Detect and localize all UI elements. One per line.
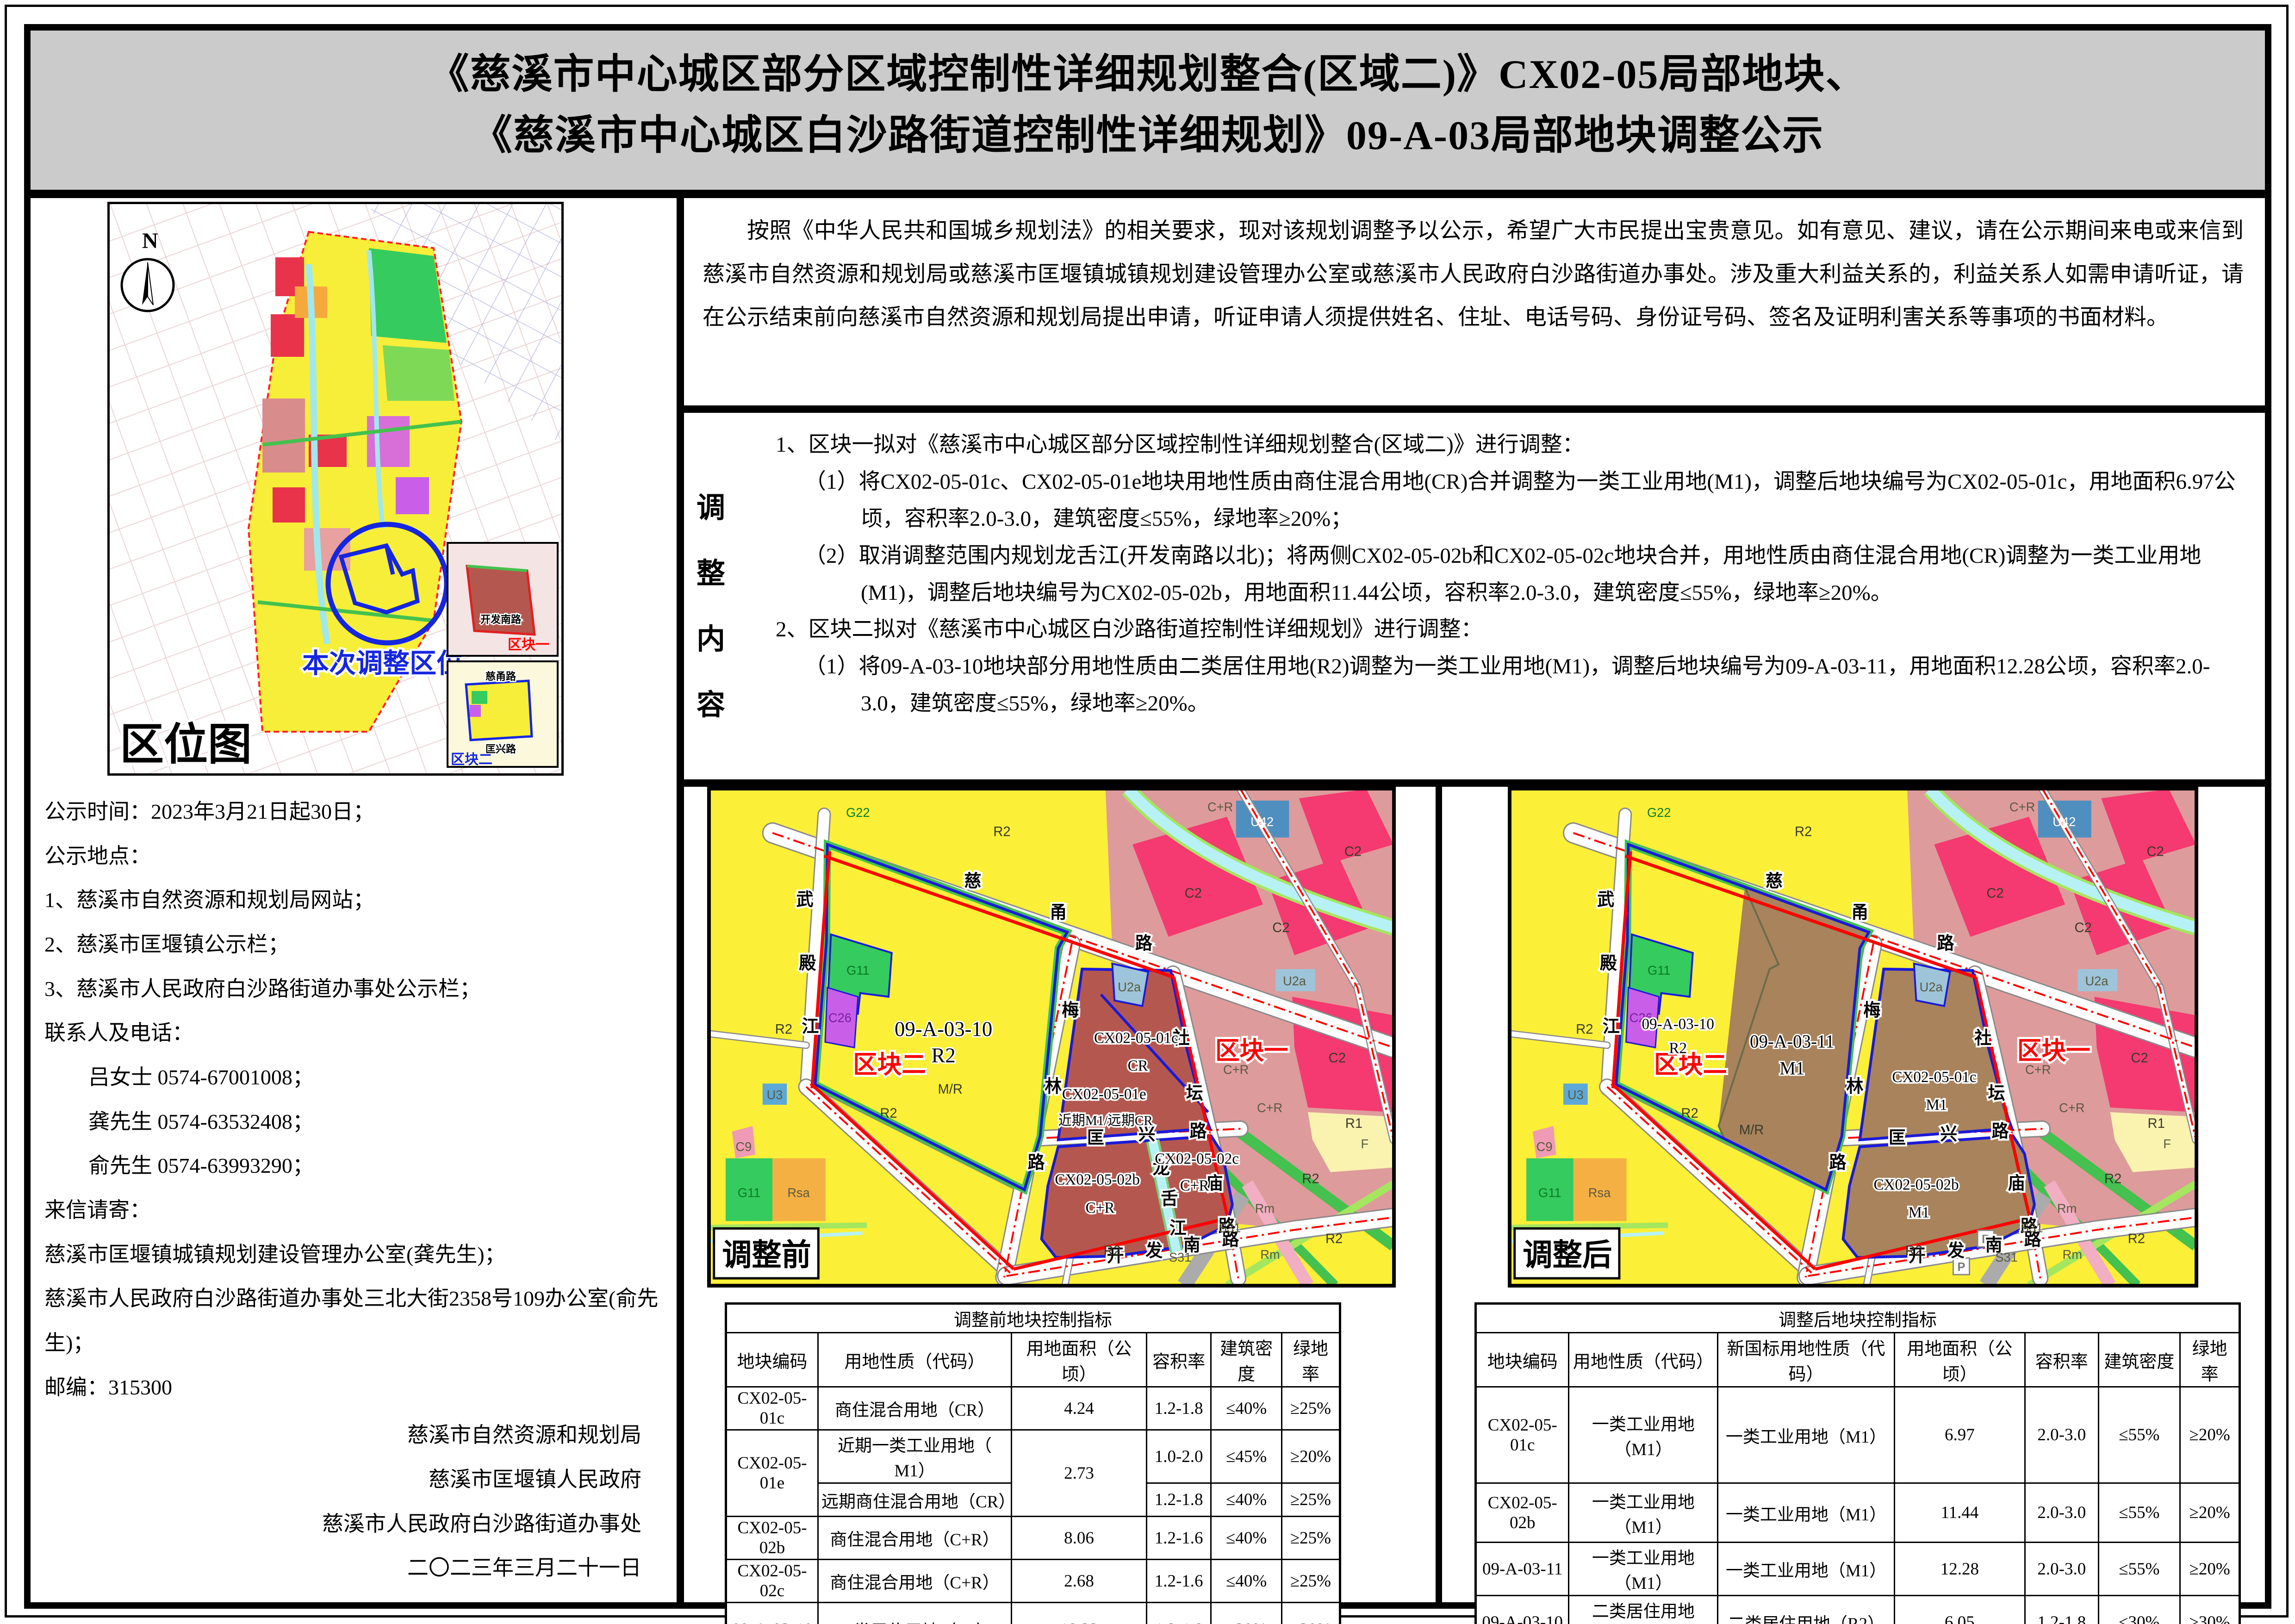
svg-text:M1: M1 xyxy=(1926,1096,1947,1114)
side-label-char: 调 xyxy=(692,484,729,526)
table-row: CX02-05-02c 商住混合用地（C+R） 2.68 1.2-1.6 ≤40… xyxy=(726,1560,1340,1603)
cell: 2.0-3.0 xyxy=(2025,1543,2098,1596)
after-map-corner-label: 调整后 xyxy=(1523,1238,1612,1272)
svg-text:C2: C2 xyxy=(2131,1050,2148,1065)
col-header: 容积率 xyxy=(2025,1333,2098,1387)
cell: 一类工业用地（M1） xyxy=(1569,1483,1718,1543)
svg-text:R2: R2 xyxy=(1104,1243,1121,1258)
before-adjustment-map: 调整前 慈 甬 路 武 殿 江 梅 林 路 匡 兴 路 社 坛 庙 路 开 发 xyxy=(707,787,1396,1288)
cell: ≤40% xyxy=(1211,1483,1282,1517)
svg-text:C2: C2 xyxy=(1329,1050,1346,1065)
adjustment-content: 1、区块一拟对《慈溪市中心城区部分区域控制性详细规划整合(区域二)》进行调整： … xyxy=(753,427,2248,722)
info-line: 3、慈溪市人民政府白沙路街道办事处公示栏； xyxy=(44,967,667,1011)
svg-text:慈: 慈 xyxy=(1766,871,1783,891)
svg-text:C9: C9 xyxy=(1536,1139,1553,1154)
after-adjustment-map: P P 调整后 慈 甬 路 武 殿 江 梅 林 路 匡 兴 xyxy=(1508,787,2198,1288)
svg-text:F: F xyxy=(1361,1137,1368,1151)
svg-text:C2: C2 xyxy=(1344,844,1362,859)
svg-text:路: 路 xyxy=(1829,1153,1847,1172)
svg-text:F: F xyxy=(2163,1137,2171,1151)
side-label-char: 整 xyxy=(692,550,729,591)
cell: CX02-05-02b xyxy=(726,1517,818,1560)
svg-text:舌: 舌 xyxy=(1161,1189,1178,1209)
svg-text:CX02-05-02b: CX02-05-02b xyxy=(1055,1171,1140,1188)
svg-text:U3: U3 xyxy=(1567,1088,1584,1102)
svg-text:U2a: U2a xyxy=(1283,974,1306,988)
location-map-svg: 本次调整区位 N 开发南路 区块一 xyxy=(110,204,561,773)
svg-text:江: 江 xyxy=(1169,1219,1187,1238)
svg-text:G11: G11 xyxy=(738,1185,760,1200)
table-row: CX02-05-01c 一类工业用地（M1） 一类工业用地（M1） 6.97 2… xyxy=(1476,1387,2240,1483)
svg-text:Rm: Rm xyxy=(2057,1201,2077,1215)
svg-text:R2: R2 xyxy=(1681,1106,1698,1121)
svg-text:G11: G11 xyxy=(846,963,869,977)
adjustment-item1-head: 1、区块一拟对《慈溪市中心城区部分区域控制性详细规划整合(区域二)》进行调整： xyxy=(753,427,2248,464)
svg-text:R1: R1 xyxy=(2148,1116,2165,1131)
notice-paragraph: 按照《中华人民共和国城乡规划法》的相关要求，现对该规划调整予以公示，希望广大市民… xyxy=(703,209,2244,339)
contact-line: 俞先生 0574-63993290； xyxy=(44,1144,667,1188)
signature-date: 二〇二三年三月二十一日 xyxy=(44,1546,641,1590)
col-header: 用地性质（代码） xyxy=(1569,1333,1718,1387)
divider-under-notice xyxy=(684,405,2265,413)
cell: 09-A-03-10 xyxy=(726,1603,818,1624)
svg-text:路: 路 xyxy=(1135,934,1153,954)
svg-text:Rsa: Rsa xyxy=(1588,1185,1611,1200)
cell: 1.2-1.6 xyxy=(1146,1517,1211,1560)
location-map: 本次调整区位 N 开发南路 区块一 xyxy=(107,202,564,776)
divider-before-after xyxy=(1436,787,1442,1602)
svg-text:G11: G11 xyxy=(1648,963,1671,977)
before-map-svg: 调整前 慈 甬 路 武 殿 江 梅 林 路 匡 兴 路 社 坛 庙 路 开 发 xyxy=(709,789,1393,1285)
svg-text:开发南路: 开发南路 xyxy=(480,614,522,625)
notice-info: 公示时间：2023年3月21日起30日； 公示地点： 1、慈溪市自然资源和规划局… xyxy=(44,790,667,1590)
title-line-1: 《慈溪市中心城区部分区域控制性详细规划整合(区域二)》CX02-05局部地块、 xyxy=(31,44,2265,106)
svg-text:CX02-05-02b: CX02-05-02b xyxy=(1873,1176,1959,1193)
svg-text:CX02-05-02c: CX02-05-02c xyxy=(1155,1150,1239,1167)
cell: 1.2-1.8 xyxy=(2025,1596,2098,1624)
svg-text:U2a: U2a xyxy=(1920,979,1943,994)
svg-text:R1: R1 xyxy=(1345,1116,1362,1131)
col-header: 地块编码 xyxy=(1476,1333,1569,1387)
svg-text:U2a: U2a xyxy=(1118,979,1141,994)
svg-text:S31: S31 xyxy=(2021,1220,2043,1235)
cell: 2.0-3.0 xyxy=(2025,1483,2098,1543)
svg-text:路: 路 xyxy=(1991,1122,2009,1141)
cell: 12.28 xyxy=(1894,1543,2025,1596)
svg-text:P: P xyxy=(1958,1261,1965,1274)
svg-text:梅: 梅 xyxy=(1062,1001,1079,1020)
after-indicator-table: 调整后地块控制指标 地块编码 用地性质（代码） 新国标用地性质（代码） 用地面积… xyxy=(1474,1302,2241,1624)
svg-text:武: 武 xyxy=(1597,890,1614,909)
svg-text:C2: C2 xyxy=(1986,885,2003,901)
svg-text:M/R: M/R xyxy=(938,1082,962,1097)
svg-text:C2: C2 xyxy=(1272,920,1289,935)
info-line: 1、慈溪市自然资源和规划局网站； xyxy=(44,878,667,922)
cell: 二类居住用地（R2） xyxy=(818,1603,1012,1624)
info-line: 慈溪市人民政府白沙路街道办事处三北大街2358号109办公室(俞先生)； xyxy=(44,1276,667,1365)
title-band: 《慈溪市中心城区部分区域控制性详细规划整合(区域二)》CX02-05局部地块、 … xyxy=(31,31,2265,198)
svg-text:R2: R2 xyxy=(2128,1231,2145,1246)
svg-text:路: 路 xyxy=(1190,1121,1207,1141)
svg-text:09-A-03-11: 09-A-03-11 xyxy=(1750,1031,1835,1052)
divider-vertical-main xyxy=(677,198,684,1602)
table-row: 09-A-03-10 二类居住用地（R2） 二类居住用地（R2） 6.05 1.… xyxy=(1476,1596,2240,1624)
col-header: 新国标用地性质（代码） xyxy=(1718,1333,1894,1387)
inset-block1: 开发南路 区块一 xyxy=(448,543,558,656)
cell: 近期一类工业用地（ M1） xyxy=(818,1430,1012,1483)
svg-text:R2: R2 xyxy=(775,1021,792,1037)
before-indicator-table: 调整前地块控制指标 地块编码 用地性质（代码） 用地面积（公顷） 容积率 建筑密… xyxy=(725,1302,1341,1624)
cell: ≤40% xyxy=(1211,1517,1282,1560)
cell: ≥30% xyxy=(1281,1603,1340,1624)
svg-text:CR: CR xyxy=(1128,1057,1149,1074)
cell: ≥20% xyxy=(2180,1387,2240,1483)
info-line: 联系人及电话： xyxy=(44,1011,667,1055)
cell: ≥30% xyxy=(2180,1596,2240,1624)
signature-line: 慈溪市自然资源和规划局 xyxy=(44,1413,641,1457)
cell: ≤55% xyxy=(2098,1483,2180,1543)
info-line: 来信请寄： xyxy=(44,1188,667,1232)
cell: 一类工业用地（M1） xyxy=(1718,1387,1894,1483)
table-title: 调整后地块控制指标 xyxy=(1476,1304,2240,1333)
info-line: 公示地点： xyxy=(44,834,667,878)
signature-line: 慈溪市人民政府白沙路街道办事处 xyxy=(44,1502,641,1546)
adjustment-item1-1: （1）将CX02-05-01c、CX02-05-01e地块用地性质由商住混合用地… xyxy=(753,464,2248,538)
table-row: 09-A-03-11 一类工业用地（M1） 一类工业用地（M1） 12.28 2… xyxy=(1476,1543,2240,1596)
svg-text:N: N xyxy=(142,229,158,253)
svg-text:U42: U42 xyxy=(2052,814,2076,828)
col-header: 建筑密度 xyxy=(2098,1333,2180,1387)
svg-text:C2: C2 xyxy=(2147,844,2164,859)
svg-text:坛: 坛 xyxy=(1988,1084,2005,1103)
cell: ≤40% xyxy=(1211,1560,1282,1603)
svg-text:武: 武 xyxy=(796,890,814,910)
svg-text:S31: S31 xyxy=(1169,1250,1191,1264)
col-header: 建筑密度 xyxy=(1211,1333,1282,1387)
table-row: CX02-05-02b 一类工业用地（M1） 一类工业用地（M1） 11.44 … xyxy=(1476,1483,2240,1543)
col-header: 用地面积（公顷） xyxy=(1012,1333,1147,1387)
adjustment-item2-head: 2、区块二拟对《慈溪市中心城区白沙路街道控制性详细规划》进行调整： xyxy=(753,611,2248,648)
cell: ≥25% xyxy=(1281,1387,1340,1430)
cell: ≥20% xyxy=(2180,1483,2240,1543)
svg-text:09-A-03-10: 09-A-03-10 xyxy=(1642,1015,1714,1033)
cell: 1.2-1.6 xyxy=(1146,1560,1211,1603)
adjustment-item1-2: （2）取消调整范围内规划龙舌江(开发南路以北)；将两侧CX02-05-02b和C… xyxy=(753,538,2248,612)
table-title: 调整前地块控制指标 xyxy=(726,1304,1340,1333)
svg-text:甬: 甬 xyxy=(1050,903,1067,923)
table-row: CX02-05-01e 近期一类工业用地（ M1） 2.73 1.0-2.0 ≤… xyxy=(726,1430,1340,1483)
svg-text:C9: C9 xyxy=(736,1139,752,1153)
col-header: 绿地率 xyxy=(2180,1333,2240,1387)
svg-text:殿: 殿 xyxy=(1600,954,1617,973)
content-frame: 《慈溪市中心城区部分区域控制性详细规划整合(区域二)》CX02-05局部地块、 … xyxy=(24,24,2271,1609)
divider-under-adjustment xyxy=(684,779,2265,787)
svg-text:Rm: Rm xyxy=(1255,1201,1275,1215)
table-row: CX02-05-02b 商住混合用地（C+R） 8.06 1.2-1.6 ≤40… xyxy=(726,1517,1340,1560)
svg-text:C+R: C+R xyxy=(1223,1062,1249,1076)
svg-text:CX02-05-01e: CX02-05-01e xyxy=(1062,1086,1146,1103)
svg-text:G11: G11 xyxy=(1538,1185,1561,1200)
svg-text:R2: R2 xyxy=(1669,1039,1687,1057)
cell: 二类居住用地（R2） xyxy=(1718,1596,1894,1624)
svg-text:C+R: C+R xyxy=(2059,1101,2084,1115)
cell: CX02-05-02b xyxy=(1476,1483,1569,1543)
cell: ≥25% xyxy=(1281,1517,1340,1560)
cell: 远期商住混合用地（CR） xyxy=(818,1483,1012,1517)
cell: ≥25% xyxy=(1281,1560,1340,1603)
col-header: 用地性质（代码） xyxy=(818,1333,1012,1387)
signature-line: 慈溪市匡堰镇人民政府 xyxy=(44,1457,641,1502)
inset-block2: 慈甬路 匡兴路 区块二 xyxy=(448,661,558,767)
cell: ≤55% xyxy=(2098,1387,2180,1483)
cell: 一类工业用地（M1） xyxy=(1718,1543,1894,1596)
cell: 2.73 xyxy=(1012,1430,1147,1517)
cell: CX02-05-01c xyxy=(1476,1387,1569,1483)
svg-text:C+R: C+R xyxy=(1180,1177,1209,1194)
cell: 18.33 xyxy=(1012,1603,1147,1624)
highlight-label: 本次调整区位 xyxy=(302,648,463,678)
col-header: 地块编码 xyxy=(726,1333,818,1387)
side-label-char: 内 xyxy=(692,616,729,657)
cell: 2.68 xyxy=(1012,1560,1147,1603)
svg-text:林: 林 xyxy=(1045,1077,1062,1097)
cell: 商住混合用地（CR） xyxy=(818,1387,1012,1430)
svg-text:江: 江 xyxy=(1603,1017,1620,1036)
inset2-label: 区块二 xyxy=(451,752,492,767)
cell: 4.24 xyxy=(1012,1387,1147,1430)
cell: 2.0-3.0 xyxy=(2025,1387,2098,1483)
notice-paragraph-text: 按照《中华人民共和国城乡规划法》的相关要求，现对该规划调整予以公示，希望广大市民… xyxy=(703,209,2244,339)
cell: 1.2-1.8 xyxy=(1146,1603,1211,1624)
cell: ≤45% xyxy=(1211,1430,1282,1483)
title-line-2: 《慈溪市中心城区白沙路街道控制性详细规划》09-A-03局部地块调整公示 xyxy=(31,106,2265,167)
table-row: 09-A-03-10 二类居住用地（R2） 18.33 1.2-1.8 ≤30%… xyxy=(726,1603,1340,1624)
adjustment-item2-1: （1）将09-A-03-10地块部分用地性质由二类居住用地(R2)调整为一类工业… xyxy=(753,648,2248,722)
table-row: CX02-05-01c 商住混合用地（CR） 4.24 1.2-1.8 ≤40%… xyxy=(726,1387,1340,1430)
svg-text:C+R: C+R xyxy=(1257,1101,1282,1115)
svg-text:S31: S31 xyxy=(1219,1220,1241,1235)
svg-text:Rsa: Rsa xyxy=(787,1185,810,1200)
svg-text:U2a: U2a xyxy=(2085,974,2108,988)
zone2-label: 区块二 xyxy=(853,1051,926,1079)
cell: 商住混合用地（C+R） xyxy=(818,1517,1012,1560)
svg-text:R2: R2 xyxy=(2104,1171,2121,1186)
cell: ≥20% xyxy=(2180,1543,2240,1596)
svg-text:S31: S31 xyxy=(1995,1250,2018,1264)
zone1-label: 区块一 xyxy=(2017,1037,2090,1065)
svg-text:坛: 坛 xyxy=(1186,1084,1203,1104)
cell: 1.0-2.0 xyxy=(1146,1430,1211,1483)
col-header: 容积率 xyxy=(1146,1333,1211,1387)
public-notice-poster: 《慈溪市中心城区部分区域控制性详细规划整合(区域二)》CX02-05局部地块、 … xyxy=(0,0,2295,1624)
svg-text:殿: 殿 xyxy=(799,954,817,974)
svg-text:慈甬路: 慈甬路 xyxy=(485,671,516,682)
svg-text:U3: U3 xyxy=(767,1088,783,1102)
svg-text:M/R: M/R xyxy=(1739,1122,1764,1138)
cell: ≥20% xyxy=(1281,1430,1340,1483)
cell: 1.2-1.8 xyxy=(1146,1483,1211,1517)
info-line: 公示时间：2023年3月21日起30日； xyxy=(44,790,667,834)
info-line: 2、慈溪市匡堰镇公示栏； xyxy=(44,922,667,967)
svg-text:R2: R2 xyxy=(1302,1171,1319,1186)
svg-text:C+R: C+R xyxy=(1207,800,1233,814)
svg-text:匡: 匡 xyxy=(1889,1128,1906,1147)
svg-text:庙: 庙 xyxy=(2008,1174,2025,1193)
svg-text:C2: C2 xyxy=(2075,920,2092,935)
side-label-char: 容 xyxy=(692,681,729,723)
svg-text:甬: 甬 xyxy=(1851,903,1868,922)
zone2-label: 区块二 xyxy=(1654,1051,1727,1079)
svg-text:G22: G22 xyxy=(1647,805,1671,820)
cell: 11.44 xyxy=(1894,1483,2025,1543)
svg-text:C+R: C+R xyxy=(2009,800,2035,814)
cell: 一类工业用地（M1） xyxy=(1569,1543,1718,1596)
cell: ≤40% xyxy=(1211,1387,1282,1430)
svg-text:R2: R2 xyxy=(880,1106,897,1121)
svg-text:U42: U42 xyxy=(1250,814,1274,828)
svg-text:R2: R2 xyxy=(1795,824,1812,839)
svg-text:M1: M1 xyxy=(1779,1058,1804,1078)
svg-text:路: 路 xyxy=(1027,1153,1045,1173)
svg-text:梅: 梅 xyxy=(1863,1001,1880,1020)
cell: 8.06 xyxy=(1012,1517,1147,1560)
cell: 09-A-03-10 xyxy=(1476,1596,1569,1624)
svg-text:近期M1/远期CR: 近期M1/远期CR xyxy=(1058,1113,1153,1128)
svg-text:C26: C26 xyxy=(828,1010,852,1025)
svg-text:江: 江 xyxy=(802,1017,819,1037)
location-map-title: 区位图 xyxy=(120,720,252,769)
svg-text:R2: R2 xyxy=(932,1044,956,1067)
cell: 商住混合用地（C+R） xyxy=(818,1560,1012,1603)
cell: 二类居住用地（R2） xyxy=(1569,1596,1718,1624)
contact-line: 龚先生 0574-63532408； xyxy=(44,1100,667,1144)
contact-line: 吕女士 0574-67001008； xyxy=(44,1055,667,1100)
col-header: 用地面积（公顷） xyxy=(1894,1333,2025,1387)
svg-text:C+R: C+R xyxy=(1086,1199,1115,1216)
svg-text:C+R: C+R xyxy=(2025,1062,2051,1076)
before-map-corner-label: 调整前 xyxy=(722,1238,811,1272)
zone1-label: 区块一 xyxy=(1215,1037,1288,1065)
svg-text:R2: R2 xyxy=(993,824,1010,839)
adjustment-side-label: 调 整 内 容 xyxy=(692,484,729,747)
svg-text:M1: M1 xyxy=(1908,1204,1929,1221)
info-line: 邮编：315300 xyxy=(44,1365,667,1410)
svg-text:慈: 慈 xyxy=(964,871,981,891)
svg-text:R2: R2 xyxy=(1325,1231,1343,1246)
cell: 一类工业用地（M1） xyxy=(1718,1483,1894,1543)
cell: 09-A-03-11 xyxy=(1476,1543,1569,1596)
svg-text:路: 路 xyxy=(1937,934,1954,953)
svg-text:R2: R2 xyxy=(1576,1021,1593,1037)
signature-block: 慈溪市自然资源和规划局 慈溪市匡堰镇人民政府 慈溪市人民政府白沙路街道办事处 二… xyxy=(44,1413,667,1590)
cell: 1.2-1.8 xyxy=(1146,1387,1211,1430)
cell: 6.97 xyxy=(1894,1387,2025,1483)
svg-text:09-A-03-10: 09-A-03-10 xyxy=(895,1017,992,1041)
inset1-label: 区块一 xyxy=(508,637,549,653)
cell: 6.05 xyxy=(1894,1596,2025,1624)
cell: ≤30% xyxy=(1211,1603,1282,1624)
after-map-svg: P P 调整后 慈 甬 路 武 殿 江 梅 林 路 匡 兴 xyxy=(1510,789,2196,1285)
svg-text:Rm: Rm xyxy=(1260,1247,1280,1262)
svg-text:兴: 兴 xyxy=(1940,1125,1957,1144)
svg-text:发: 发 xyxy=(1145,1241,1163,1261)
cell: ≤55% xyxy=(2098,1543,2180,1596)
svg-text:C2: C2 xyxy=(1185,885,1202,901)
svg-text:R2: R2 xyxy=(1905,1243,1922,1258)
svg-text:CX02-05-01c: CX02-05-01c xyxy=(1094,1029,1178,1046)
svg-text:发: 发 xyxy=(1947,1241,1965,1261)
svg-text:Rm: Rm xyxy=(2063,1247,2082,1262)
info-line: 慈溪市匡堰镇城镇规划建设管理办公室(龚先生)； xyxy=(44,1232,667,1277)
cell: CX02-05-01c xyxy=(726,1387,818,1430)
cell: ≤30% xyxy=(2098,1596,2180,1624)
col-header: 绿地率 xyxy=(1281,1333,1340,1387)
cell: CX02-05-02c xyxy=(726,1560,818,1603)
svg-text:G22: G22 xyxy=(846,805,870,820)
svg-text:匡: 匡 xyxy=(1087,1128,1104,1148)
cell: ≥25% xyxy=(1281,1483,1340,1517)
cell: CX02-05-01e xyxy=(726,1430,818,1517)
cell: 一类工业用地（M1） xyxy=(1569,1387,1718,1483)
svg-text:CX02-05-01c: CX02-05-01c xyxy=(1892,1069,1976,1086)
svg-text:林: 林 xyxy=(1846,1077,1864,1096)
svg-text:社: 社 xyxy=(1974,1028,1991,1048)
